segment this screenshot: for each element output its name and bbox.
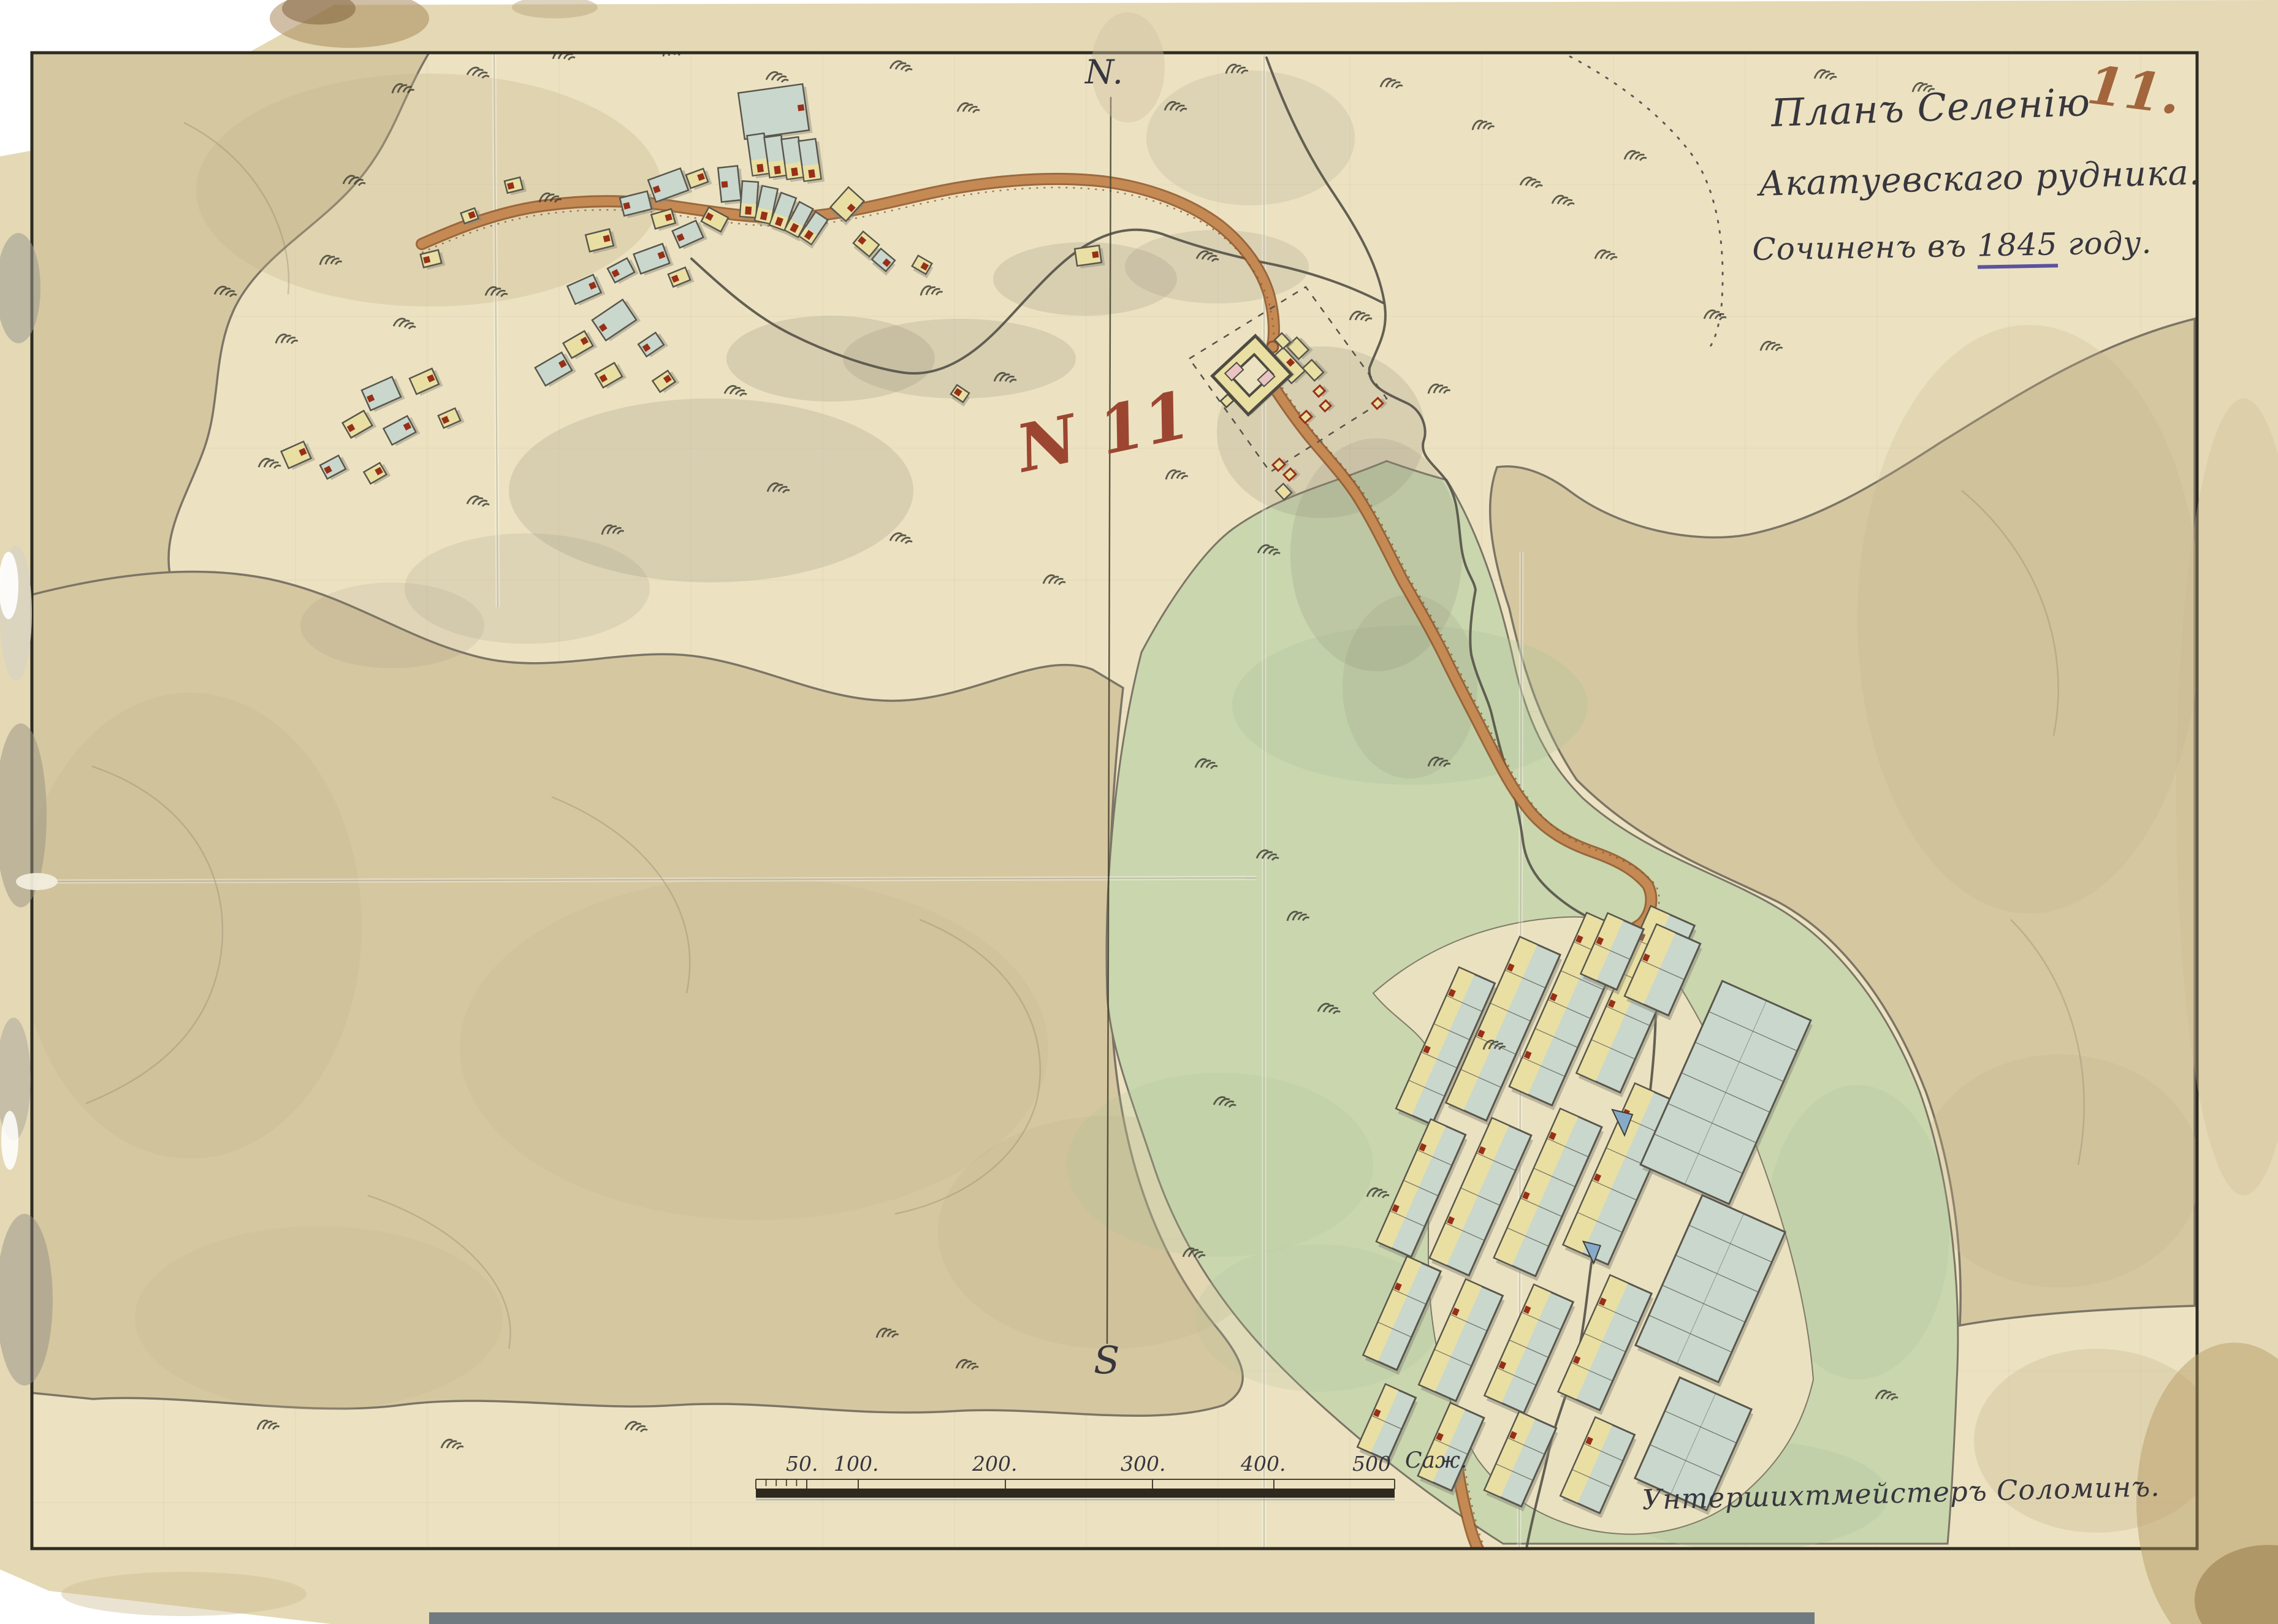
building (1075, 245, 1105, 269)
south-label: S (1094, 1338, 1120, 1382)
wash (1, 1111, 18, 1170)
title-year: 1845 (1977, 226, 2058, 269)
title-date-suffix: году. (2057, 225, 2152, 262)
page-number: 11. (2084, 54, 2185, 127)
wash (300, 582, 484, 668)
wash (1919, 1054, 2201, 1287)
scale-tick-50: 50. (786, 1452, 818, 1476)
scale-tick-500: 500 (1352, 1452, 1391, 1476)
wash (135, 1226, 503, 1410)
wash (1067, 1073, 1373, 1257)
north-label: N. (1085, 53, 1124, 91)
scanned-map-page: Планъ Селенію Акатуевскаго рудника. Сочи… (0, 0, 2278, 1624)
scale-tick-400: 400. (1241, 1452, 1286, 1476)
scale-tick-100: 100. (834, 1452, 878, 1476)
scale-unit: Саж. (1405, 1448, 1467, 1473)
map-title-line3: Сочиненъ въ 1845 году. (1752, 225, 2152, 267)
wash (16, 873, 58, 890)
wash (61, 1572, 307, 1616)
wash (1857, 325, 2201, 913)
wash (196, 74, 662, 307)
wash (1146, 71, 1355, 205)
building (738, 83, 812, 142)
backing-gap (429, 1612, 1815, 1624)
wash (460, 877, 1048, 1220)
scale-tick-200: 200. (972, 1452, 1017, 1476)
wash (18, 693, 362, 1159)
title-date-prefix: Сочиненъ въ (1752, 228, 1978, 267)
scale-tick-300: 300. (1121, 1452, 1165, 1476)
